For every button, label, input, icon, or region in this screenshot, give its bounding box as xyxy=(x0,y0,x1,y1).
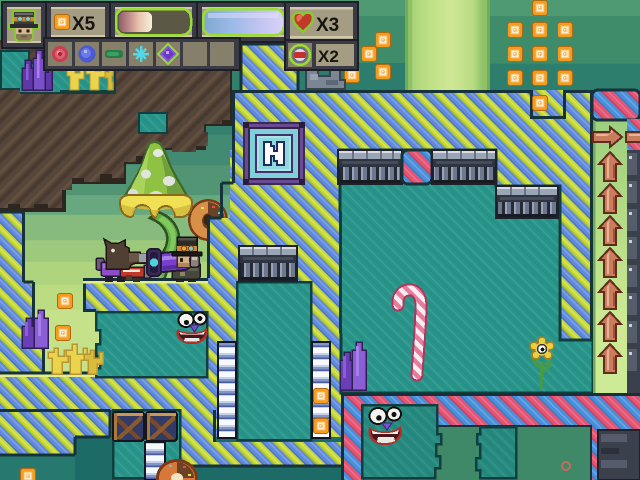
svg-text:X3: X3 xyxy=(316,15,339,36)
svg-text:X2: X2 xyxy=(318,47,339,66)
svg-text:X5: X5 xyxy=(72,14,96,35)
